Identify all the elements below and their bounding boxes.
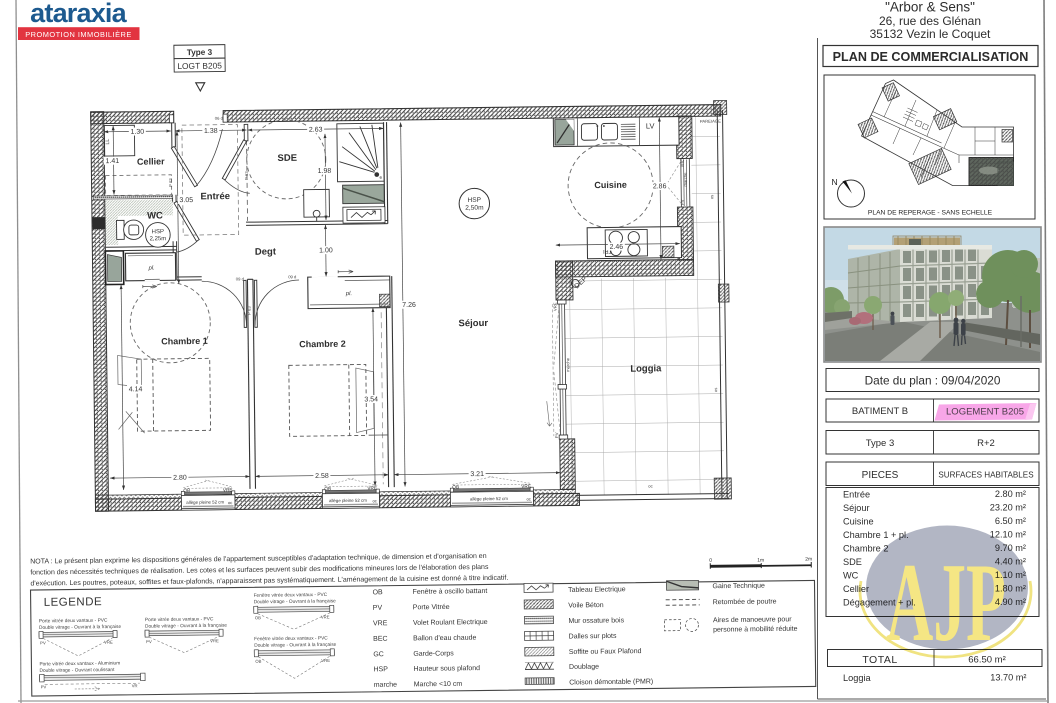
svg-text:pl.: pl.: [345, 291, 352, 297]
svg-text:LOGT B205: LOGT B205: [177, 60, 222, 71]
svg-text:Chambre 2: Chambre 2: [299, 339, 346, 350]
svg-text:13.70 m²: 13.70 m²: [990, 673, 1026, 683]
svg-text:GC: GC: [373, 651, 384, 658]
svg-text:LEGENDE: LEGENDE: [44, 596, 103, 609]
svg-text:26, rue des Glénan: 26, rue des Glénan: [879, 14, 981, 28]
svg-text:Double vitrage - Ouvrant à la: Double vitrage - Ouvrant à la française: [145, 623, 228, 630]
svg-text:2.58: 2.58: [315, 473, 329, 480]
svg-text:Double vitrage - Ouvrant à la: Double vitrage - Ouvrant à la française: [254, 598, 337, 605]
svg-text:Soffite ou Faux Plafond: Soffite ou Faux Plafond: [569, 648, 642, 656]
svg-text:pl.: pl.: [148, 265, 155, 271]
svg-text:SURFACES HABITABLES: SURFACES HABITABLES: [938, 471, 1034, 480]
svg-text:VRE: VRE: [321, 658, 330, 663]
svg-text:oc: oc: [372, 498, 376, 503]
svg-text:1.98: 1.98: [318, 168, 332, 175]
svg-text:2.86: 2.86: [653, 183, 667, 190]
svg-text:PIECES: PIECES: [862, 470, 899, 481]
svg-text:2,50m: 2,50m: [465, 205, 484, 212]
svg-text:Aires de manoeuvre pour: Aires de manoeuvre pour: [713, 616, 792, 624]
svg-text:PV: PV: [146, 639, 152, 644]
svg-text:1m: 1m: [757, 558, 764, 564]
svg-text:LOGEMENT B205: LOGEMENT B205: [946, 407, 1024, 418]
svg-text:4.14: 4.14: [129, 386, 143, 393]
svg-text:Type 3: Type 3: [187, 48, 213, 57]
svg-text:oc: oc: [526, 496, 530, 501]
svg-text:Tableau Electrique: Tableau Electrique: [568, 586, 626, 594]
svg-text:P 63: P 63: [168, 178, 173, 187]
svg-text:HSP: HSP: [373, 666, 388, 673]
svg-text:P 63: P 63: [247, 306, 252, 315]
svg-text:1.38: 1.38: [204, 128, 218, 135]
svg-text:os: os: [709, 195, 714, 199]
svg-text:VRE: VRE: [553, 302, 558, 311]
svg-text:OB: OB: [373, 589, 384, 596]
svg-text:Fenêtre vitrée deux vantaux -: Fenêtre vitrée deux vantaux - PVC: [254, 635, 328, 642]
svg-text:allège pleine 52 cm: allège pleine 52 cm: [186, 499, 224, 504]
svg-text:BEC: BEC: [373, 636, 387, 643]
svg-text:P 63: P 63: [244, 171, 249, 180]
svg-text:PV: PV: [680, 199, 685, 205]
svg-text:"Arbor & Sens": "Arbor & Sens": [885, 0, 975, 15]
svg-text:HSP: HSP: [152, 229, 164, 235]
svg-text:Cellier: Cellier: [137, 156, 165, 166]
svg-text:PV: PV: [41, 684, 47, 689]
svg-text:Cloison démontable (PMR): Cloison démontable (PMR): [569, 678, 653, 686]
svg-text:2.46: 2.46: [610, 244, 624, 251]
svg-text:3.54: 3.54: [364, 396, 378, 403]
svg-text:PLAN DE REPERAGE - SANS ECHELL: PLAN DE REPERAGE - SANS ECHELLE: [868, 210, 993, 217]
svg-text:23.20 m²: 23.20 m²: [990, 503, 1026, 513]
svg-text:Chambre 1: Chambre 1: [161, 336, 208, 347]
svg-text:allège pleine 52 cm: allège pleine 52 cm: [329, 498, 367, 503]
svg-text:Date du plan : 09/04/2020: Date du plan : 09/04/2020: [865, 374, 1001, 388]
svg-text:2.63: 2.63: [309, 127, 323, 134]
svg-text:SDE: SDE: [843, 557, 862, 567]
svg-text:VRE: VRE: [373, 620, 388, 627]
svg-text:VRE: VRE: [104, 640, 113, 645]
svg-text:Fenêtre vitrée deux vantaux -: Fenêtre vitrée deux vantaux - PVC: [254, 592, 328, 599]
svg-text:Mur ossature bois: Mur ossature bois: [568, 617, 624, 625]
svg-text:Loggia: Loggia: [630, 363, 662, 374]
svg-text:ataraxia: ataraxia: [30, 0, 127, 28]
svg-text:3.21: 3.21: [470, 471, 484, 478]
svg-text:2,25m: 2,25m: [150, 236, 167, 242]
svg-text:Volet Roulant Electrique: Volet Roulant Electrique: [413, 619, 488, 627]
svg-text:Cellier: Cellier: [843, 584, 869, 594]
svg-text:1.41: 1.41: [105, 158, 119, 165]
svg-text:PV: PV: [40, 640, 46, 645]
svg-text:allège pleine 52 cm: allège pleine 52 cm: [470, 496, 508, 501]
svg-text:Doublage: Doublage: [569, 664, 599, 671]
svg-text:Double vitrage - Ouvrant couli: Double vitrage - Ouvrant coulissant: [39, 667, 115, 674]
svg-text:N: N: [832, 177, 838, 187]
svg-text:Ballon d'eau chaude: Ballon d'eau chaude: [413, 635, 476, 643]
svg-text:Dalles sur plots: Dalles sur plots: [569, 633, 617, 641]
svg-text:2.80 m²: 2.80 m²: [995, 489, 1026, 499]
svg-text:OB: OB: [255, 659, 261, 664]
svg-text:LL: LL: [105, 139, 111, 145]
svg-text:PV: PV: [554, 432, 559, 438]
svg-text:LV: LV: [646, 121, 655, 130]
svg-text:WC: WC: [843, 571, 859, 581]
svg-text:Garde-Corps: Garde-Corps: [413, 650, 454, 657]
svg-text:Loggia: Loggia: [843, 673, 871, 683]
svg-text:Retombée de poutre: Retombée de poutre: [713, 598, 777, 606]
svg-text:oc: oc: [228, 500, 232, 505]
svg-text:oc: oc: [648, 483, 652, 488]
svg-text:09 d: 09 d: [236, 276, 245, 281]
svg-text:Porte Vitrée: Porte Vitrée: [413, 604, 450, 611]
svg-text:OB: OB: [324, 486, 331, 491]
svg-text:os: os: [713, 388, 718, 392]
svg-text:Cuisine: Cuisine: [843, 517, 874, 527]
svg-text:marche: marche: [374, 682, 398, 689]
svg-text:OB: OB: [183, 488, 190, 493]
svg-text:PLAN DE COMMERCIALISATION: PLAN DE COMMERCIALISATION: [833, 50, 1029, 64]
svg-text:Double vitrage - Ouvrant à la: Double vitrage - Ouvrant à la française: [254, 642, 337, 649]
svg-text:Hauteur sous plafond: Hauteur sous plafond: [413, 665, 480, 673]
svg-text:Séjour: Séjour: [843, 503, 870, 513]
svg-text:Fenêtre à oscillo battant: Fenêtre à oscillo battant: [413, 588, 488, 596]
svg-text:OB: OB: [255, 615, 261, 620]
svg-text:personne à mobilité réduite: personne à mobilité réduite: [713, 626, 798, 634]
svg-text:Cuisine: Cuisine: [594, 180, 627, 190]
svg-text:Degt: Degt: [255, 247, 277, 258]
svg-text:R+2: R+2: [977, 438, 995, 449]
svg-text:06 d: 06 d: [215, 116, 224, 121]
svg-text:PROMOTION IMMOBILIÈRE: PROMOTION IMMOBILIÈRE: [25, 30, 132, 39]
svg-text:SDE: SDE: [277, 153, 297, 164]
svg-text:6.50 m²: 6.50 m²: [995, 516, 1026, 526]
svg-text:35132 Vezin le Coquet: 35132 Vezin le Coquet: [870, 27, 991, 41]
svg-text:09 d: 09 d: [288, 274, 297, 279]
svg-text:3.05: 3.05: [179, 197, 193, 204]
svg-text:1.00: 1.00: [319, 247, 333, 254]
svg-text:Type 3: Type 3: [866, 438, 895, 449]
svg-text:HSP: HSP: [467, 197, 481, 204]
svg-text:Entrée: Entrée: [200, 191, 230, 202]
svg-text:AJP: AJP: [886, 540, 1006, 665]
svg-text:VRE: VRE: [679, 159, 684, 168]
svg-text:Gaine Technique: Gaine Technique: [712, 583, 765, 591]
svg-text:1.30: 1.30: [130, 129, 144, 136]
svg-text:WC: WC: [147, 210, 163, 221]
svg-text:0: 0: [709, 558, 712, 564]
svg-text:VRE: VRE: [210, 638, 219, 643]
svg-text:Voile Béton: Voile Béton: [568, 602, 604, 609]
svg-text:Porte vitrée deux vantaux - Al: Porte vitrée deux vantaux - Aluminium: [39, 660, 120, 667]
svg-text:2.80: 2.80: [173, 475, 187, 482]
svg-text:Double vitrage - Ouvrant à la: Double vitrage - Ouvrant à la française: [39, 624, 122, 631]
svg-text:PV: PV: [373, 605, 383, 612]
svg-text:VR: VR: [132, 683, 138, 688]
svg-text:OB: OB: [452, 485, 459, 490]
svg-text:Porte vitrée deux vantaux - PV: Porte vitrée deux vantaux - PVC: [39, 618, 108, 625]
svg-text:PAREIAGE: PAREIAGE: [700, 119, 721, 124]
svg-text:7.26: 7.26: [402, 302, 416, 309]
svg-text:Entrée: Entrée: [843, 490, 870, 500]
svg-text:Porte vitrée deux vantaux - PV: Porte vitrée deux vantaux - PVC: [145, 616, 214, 623]
svg-text:2m: 2m: [805, 556, 812, 562]
svg-text:Marche <10 cm: Marche <10 cm: [414, 681, 463, 689]
svg-text:BATIMENT B: BATIMENT B: [852, 406, 908, 417]
svg-text:marche: marche: [682, 172, 687, 187]
svg-text:Séjour: Séjour: [458, 318, 488, 329]
svg-text:marche: marche: [565, 357, 570, 372]
